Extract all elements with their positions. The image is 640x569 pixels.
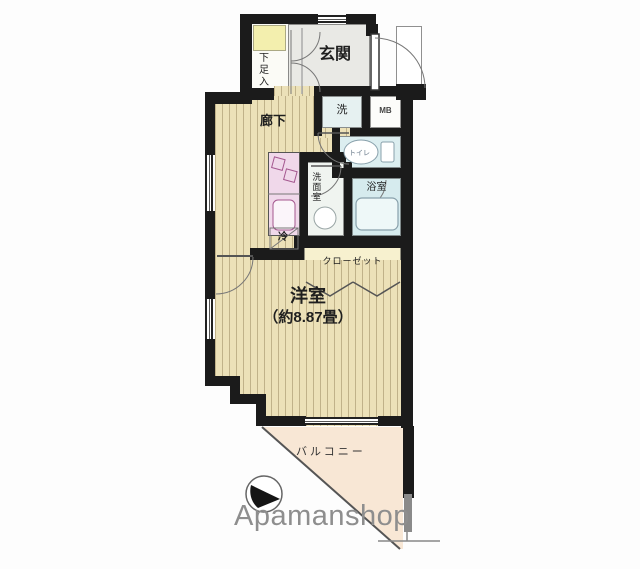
washer-label: 洗 [322, 104, 362, 117]
western-room-label-block: 洋室 （約8.87畳） [233, 286, 383, 326]
bathroom-label: 浴室 [352, 182, 401, 194]
entry-door-arc-icon [375, 38, 425, 88]
entry-door-leaf [371, 34, 379, 90]
western-room-size-label: （約8.87畳） [263, 309, 352, 326]
shoe-cabinet-door-arc-icon [291, 63, 320, 92]
toilet-tank-icon [381, 142, 394, 162]
washroom-label: 洗面室 [311, 172, 321, 202]
fridge-label: 冷 [278, 232, 288, 244]
shoe-box-label: 下足入 [256, 52, 268, 88]
genkan-label: 玄関 [302, 46, 368, 64]
stove-burner-icon [284, 169, 297, 182]
meter-box-label: MB [370, 106, 401, 115]
logo-text: Apamanshop [234, 500, 410, 533]
kitchen-sink-icon [273, 200, 295, 230]
plan-linework: トイレ [0, 0, 640, 569]
balcony-label: バルコニー [296, 446, 366, 459]
toilet-label: トイレ [349, 150, 370, 157]
western-room-label: 洋室 [290, 286, 326, 307]
closet-label: クローゼット [304, 256, 401, 266]
bathtub-icon [356, 198, 398, 230]
sink-icon [314, 207, 336, 229]
floor-plan: トイレ 玄関 下足入 廊下 洗 MB 洗面室 浴室 冷 クローゼット 洋室 （約… [0, 0, 640, 569]
stove-burner-icon [272, 157, 285, 170]
hallway-label: 廊下 [260, 114, 286, 129]
